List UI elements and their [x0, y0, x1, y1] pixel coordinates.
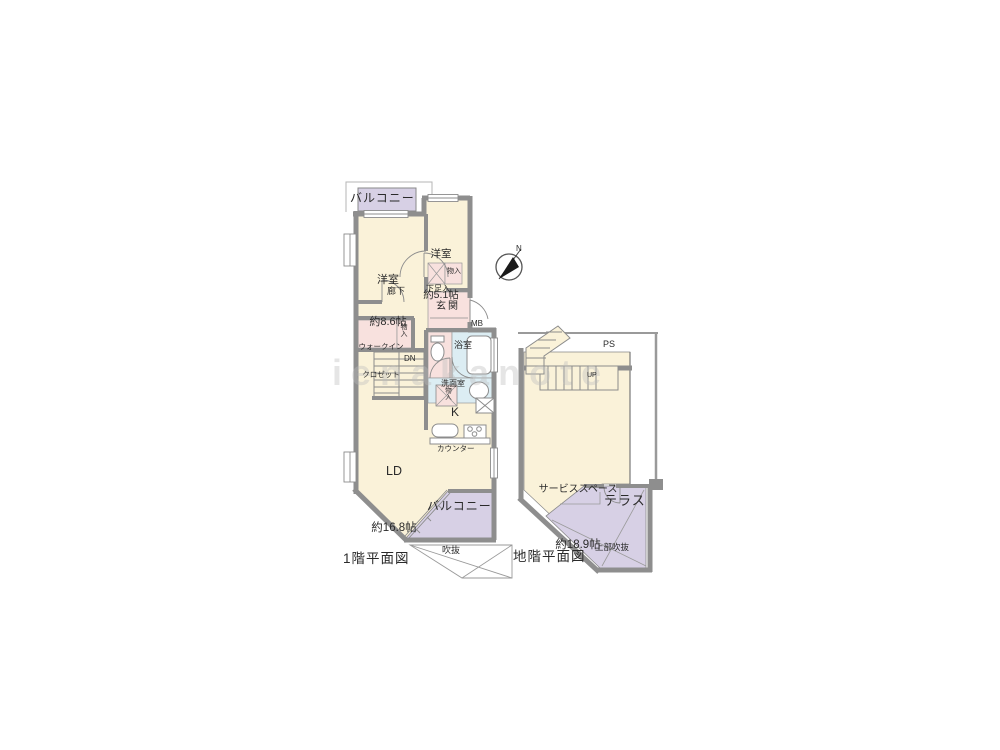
living-name: LD — [362, 464, 426, 480]
upper-void-label: 上部吹抜 — [595, 542, 629, 553]
wash-storage-label: 物入 — [443, 387, 450, 400]
floorplan-drawing — [0, 0, 1000, 750]
toilet-tank — [431, 336, 444, 342]
balcony-top-label: バルコニー — [350, 191, 415, 206]
pipe-space-label: PS — [603, 339, 615, 350]
meter-box-label: MB — [471, 319, 483, 329]
living-size: 約16.8帖 — [362, 521, 426, 535]
compass-north-label: N — [516, 244, 522, 254]
void-label: 吹抜 — [442, 545, 460, 556]
entrance-label: 玄関 — [436, 301, 460, 314]
wic-line1: ウォークイン — [350, 342, 412, 351]
floorplan-page: ienakanote バルコニー 洋室 約8.6帖 洋室 約5.1帖 廊下 玄関… — [0, 0, 1000, 750]
bathroom-label: 浴室 — [454, 340, 472, 351]
basement-caption: 地階平面図 — [513, 549, 586, 566]
first-floor-caption: 1階平面図 — [343, 551, 410, 568]
hall-storage-label: 物入 — [447, 268, 461, 277]
wash-basin — [470, 382, 489, 399]
corridor-label: 廊下 — [387, 286, 405, 297]
kitchen-label: K — [451, 405, 459, 420]
kitchen-sink — [432, 424, 458, 437]
shoe-storage-label: 下足入 — [426, 284, 450, 294]
bedroom2-name: 洋室 — [414, 248, 468, 261]
wic-line2: クロゼット — [350, 370, 412, 379]
service-space-label: サービススペース 約18.9帖 — [518, 444, 638, 592]
wic-storage-label: 物入 — [400, 323, 407, 337]
stairs-down-label: DN — [404, 354, 416, 364]
balcony-bottom-label: バルコニー — [427, 499, 492, 514]
toilet-bowl — [431, 343, 444, 361]
counter-label: カウンター — [437, 444, 475, 453]
terrace-label: テラス — [604, 493, 646, 509]
stairs-up-label: UP — [587, 372, 597, 381]
